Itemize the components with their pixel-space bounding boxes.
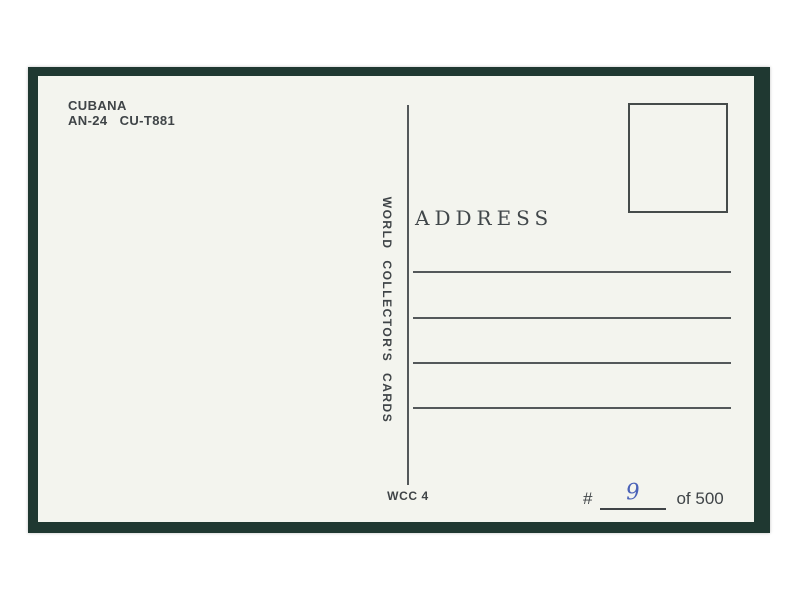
address-rule-line bbox=[413, 407, 731, 409]
publisher-header: CUBANA AN-24 CU-T881 bbox=[68, 98, 175, 128]
aircraft-identifier: AN-24 CU-T881 bbox=[68, 113, 175, 128]
serial-number-group: # 9 of 500 bbox=[583, 478, 724, 510]
airline-name: CUBANA bbox=[68, 98, 175, 113]
serial-total-label: of 500 bbox=[676, 489, 723, 510]
center-divider-line bbox=[407, 105, 409, 485]
stamp-box bbox=[628, 103, 728, 213]
serial-hash-symbol: # bbox=[583, 489, 592, 510]
address-rule-line bbox=[413, 362, 731, 364]
address-rule-line bbox=[413, 317, 731, 319]
postcard-back: CUBANA AN-24 CU-T881 WORLD COLLECTOR'S C… bbox=[28, 67, 770, 533]
address-label: ADDRESS bbox=[415, 206, 553, 230]
serial-underline: 9 bbox=[600, 478, 666, 510]
serial-handwritten-number: 9 bbox=[625, 478, 641, 509]
address-rule-line bbox=[413, 271, 731, 273]
postcard-card-surface: CUBANA AN-24 CU-T881 WORLD COLLECTOR'S C… bbox=[38, 76, 754, 522]
series-code: WCC 4 bbox=[358, 489, 458, 503]
brand-vertical-text: WORLD COLLECTOR'S CARDS bbox=[380, 197, 394, 423]
